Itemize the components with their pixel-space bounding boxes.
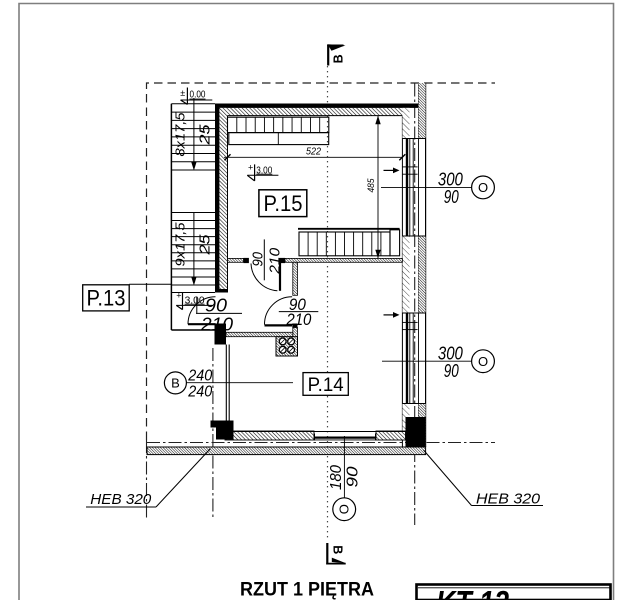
svg-text:HEB 320: HEB 320	[90, 491, 152, 508]
svg-text:90: 90	[444, 186, 460, 207]
svg-text:P.15: P.15	[264, 191, 303, 216]
svg-text:210: 210	[200, 315, 233, 335]
svg-text:9x17,5: 9x17,5	[173, 222, 188, 267]
svg-text:O: O	[337, 504, 352, 514]
svg-text:±: ±	[180, 88, 185, 98]
svg-text:210: 210	[266, 247, 283, 275]
svg-text:25: 25	[198, 233, 214, 255]
svg-text:210: 210	[285, 311, 312, 329]
svg-text:B: B	[330, 545, 344, 554]
svg-text:485: 485	[366, 178, 377, 193]
svg-text:O: O	[478, 354, 488, 369]
svg-text:B: B	[171, 375, 180, 390]
svg-text:8x17,5: 8x17,5	[173, 112, 188, 157]
svg-text:P.14: P.14	[308, 375, 344, 396]
svg-text:180: 180	[328, 465, 345, 490]
svg-text:90: 90	[250, 251, 267, 266]
svg-text:90: 90	[444, 360, 460, 381]
svg-text:240: 240	[187, 383, 212, 400]
svg-text:25: 25	[198, 123, 214, 145]
svg-text:P.13: P.13	[87, 285, 126, 310]
svg-text:O: O	[478, 180, 488, 195]
svg-text:3.00: 3.00	[185, 295, 205, 306]
svg-text:HEB 320: HEB 320	[476, 491, 541, 508]
svg-text:90: 90	[344, 466, 361, 487]
svg-text:RZUT 1 PIĘTRA: RZUT 1 PIĘTRA	[240, 580, 374, 600]
svg-text:3.00: 3.00	[256, 165, 272, 176]
svg-text:522: 522	[306, 147, 321, 158]
svg-text:240: 240	[187, 368, 212, 385]
svg-text:B: B	[331, 54, 345, 63]
svg-text:KT 12: KT 12	[436, 584, 510, 600]
svg-text:+: +	[248, 162, 253, 172]
svg-text:+: +	[176, 291, 181, 301]
